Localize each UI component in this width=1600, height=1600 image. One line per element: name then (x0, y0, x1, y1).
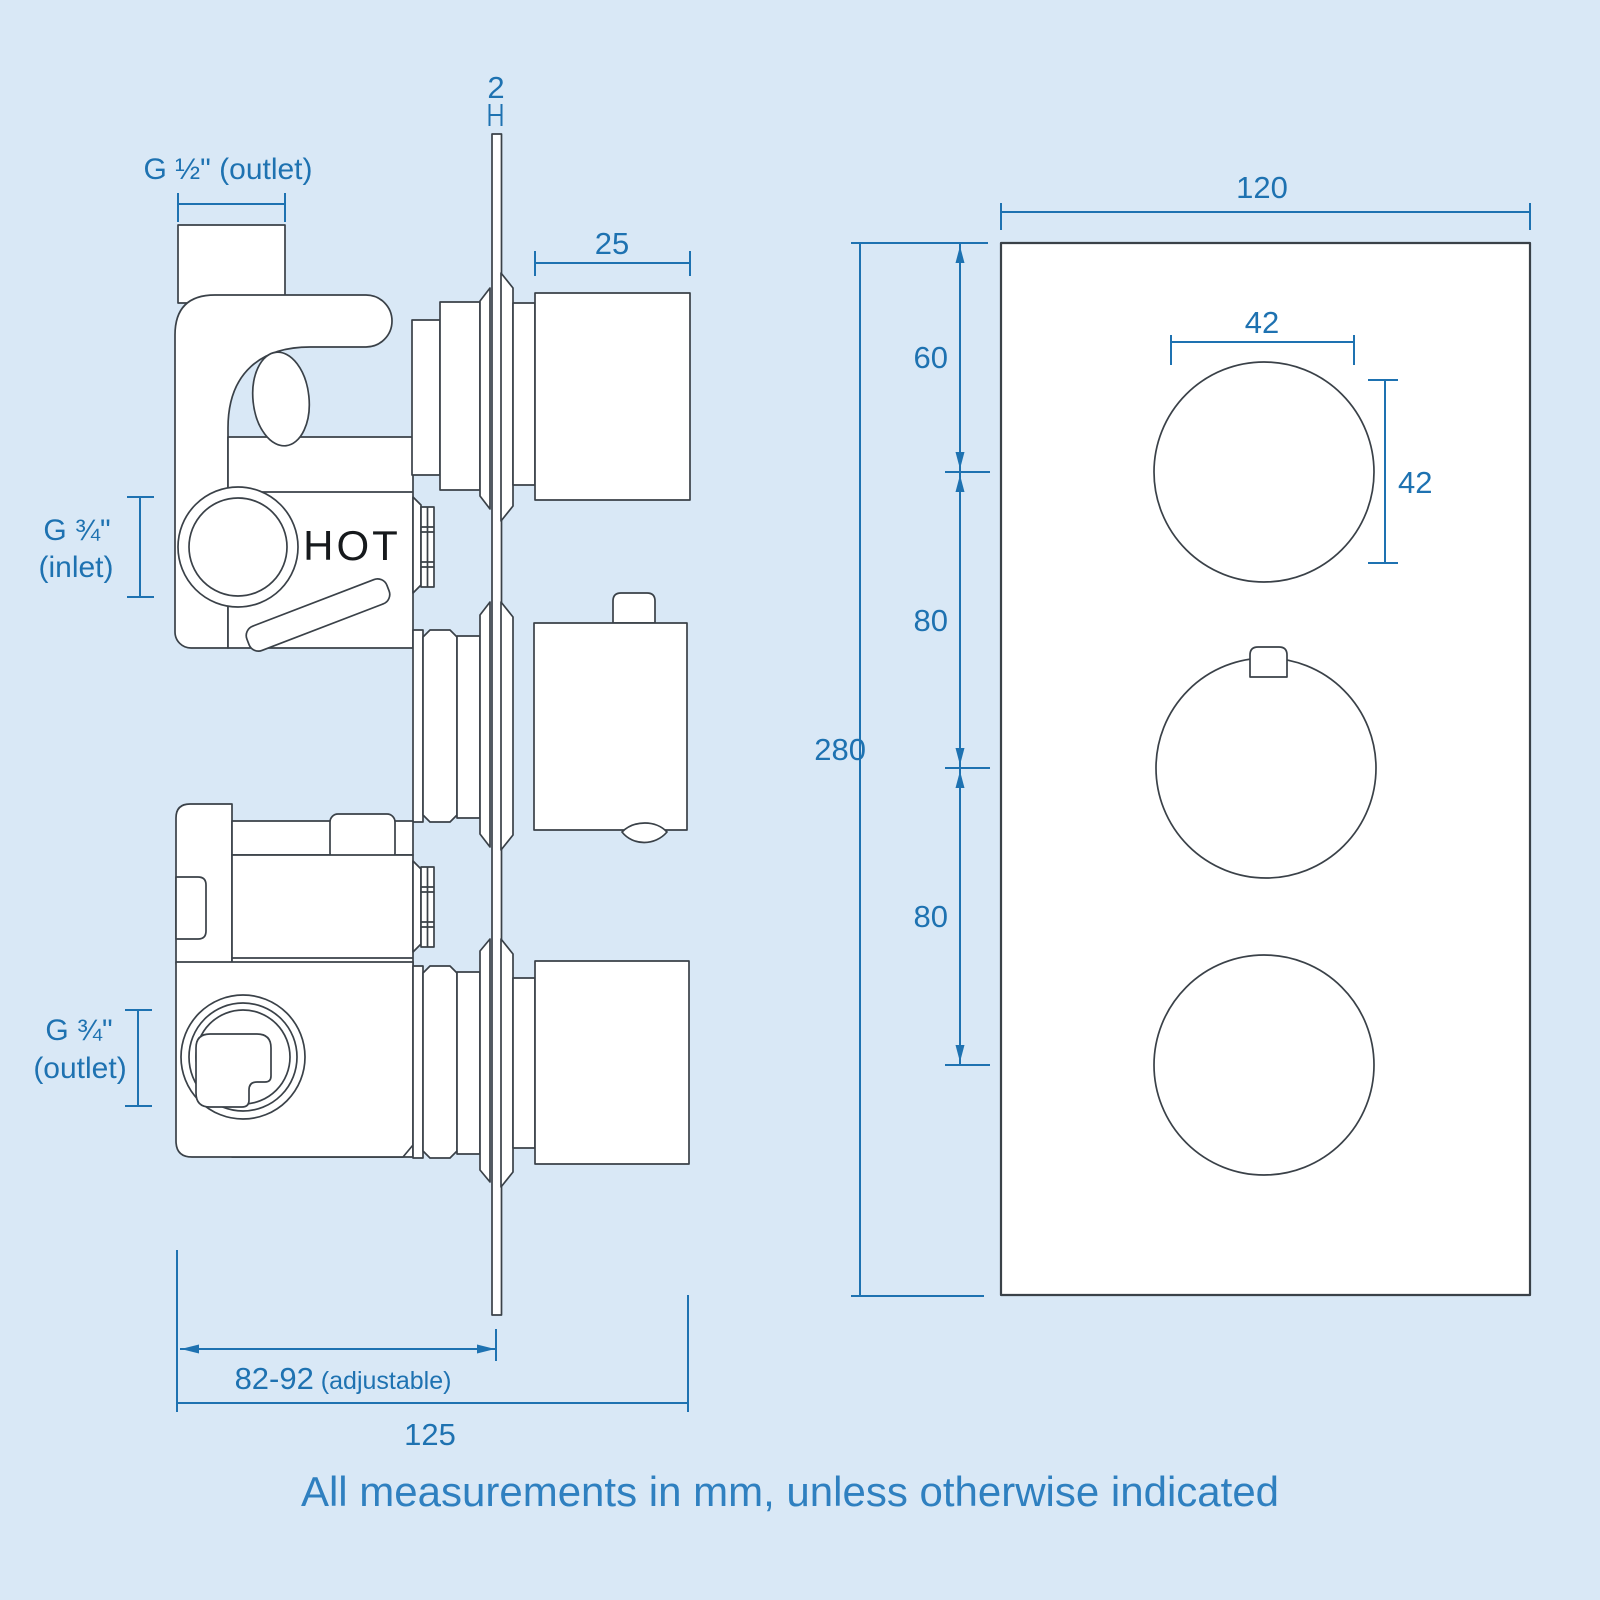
side-view: G ½" (outlet) 2 HOT G ¾" (inlet) (33, 70, 690, 1452)
knob-spacing-label-2: 80 (914, 899, 948, 934)
front-plate (1001, 243, 1530, 1295)
inlet-dim-line (127, 497, 154, 597)
top-front-flange (501, 273, 513, 521)
inlet-label-2: (inlet) (38, 551, 113, 584)
valve-dimension-diagram: G ½" (outlet) 2 HOT G ¾" (inlet) (0, 0, 1600, 1600)
cold-stub-notch (176, 877, 206, 939)
bot-rear-flange (480, 939, 490, 1182)
mid-knob-lever (613, 593, 655, 623)
mid-cartridge-c (457, 636, 480, 818)
mid-knob-lever-underside (622, 823, 667, 843)
top-rear-flange (480, 288, 490, 509)
cold-cartridge-flange (413, 861, 421, 952)
dim-arrow-down-3 (956, 1045, 965, 1062)
mid-cartridge-b (423, 630, 457, 822)
plate-width-label: 120 (1236, 170, 1288, 205)
dim-arrow-up-2 (956, 475, 965, 492)
bot-cartridge-c (457, 972, 480, 1154)
wall-plate (492, 134, 502, 1315)
total-depth-label: 125 (404, 1417, 456, 1452)
mid-knob (534, 623, 687, 830)
plate-thickness-label: 2 (487, 70, 504, 105)
top-cartridge-a (412, 320, 440, 475)
bot-cartridge-b (423, 966, 457, 1158)
knob-dia-w-label: 42 (1245, 305, 1279, 340)
knob-dia-h-label: 42 (1398, 465, 1432, 500)
body-curve-detail (248, 349, 314, 448)
inlet-port-inner (189, 498, 287, 596)
front-view: 120 280 60 80 80 42 42 (814, 170, 1530, 1296)
mid-front-flange (501, 602, 513, 850)
dim-arrow-down-1 (956, 452, 965, 469)
outlet-bottom-label-1: G ¾" (45, 1014, 112, 1047)
plate-height-ext-lines (851, 243, 988, 1296)
plate-height-label: 280 (814, 732, 866, 767)
adjustable-label: 82-92 (adjustable) (235, 1361, 452, 1396)
dim-arrow-down-2 (956, 748, 965, 765)
dim-arrow-up-1 (956, 246, 965, 263)
top-cartridge-b (440, 302, 480, 490)
mid-cartridge-a (413, 630, 423, 822)
front-knob-middle-lever-tab (1250, 647, 1287, 677)
plate-width-dim (1001, 203, 1530, 230)
mid-rear-flange (480, 602, 490, 847)
knob-offset-dim-inner (945, 243, 990, 1065)
adjustable-arrow-left (181, 1345, 199, 1354)
knob-depth-label: 25 (595, 226, 629, 261)
outlet-top-label: G ½" (outlet) (143, 153, 312, 186)
top-knob (535, 293, 690, 500)
outlet-pipe-top (178, 225, 285, 303)
inlet-label-1: G ¾" (43, 514, 110, 547)
knob-spacing-label-1: 80 (914, 603, 948, 638)
outlet-bottom-dim-line (125, 1010, 152, 1106)
bot-cartridge-a (413, 966, 423, 1158)
footer-note: All measurements in mm, unless otherwise… (301, 1468, 1279, 1515)
top-knob-neck (513, 303, 535, 485)
bot-knob-neck (513, 978, 535, 1148)
bot-knob (535, 961, 689, 1164)
outlet-top-dim-line (178, 193, 285, 222)
outlet-bottom-label-2: (outlet) (33, 1052, 126, 1085)
bot-front-flange (501, 939, 513, 1187)
cold-union-nut (330, 814, 395, 861)
top-offset-label: 60 (914, 340, 948, 375)
dim-arrow-up-3 (956, 771, 965, 788)
hot-cartridge-flange (413, 497, 421, 593)
hot-label: HOT (303, 522, 401, 569)
plate-thickness-dim (490, 104, 502, 126)
adjustable-arrow-right (477, 1345, 495, 1354)
